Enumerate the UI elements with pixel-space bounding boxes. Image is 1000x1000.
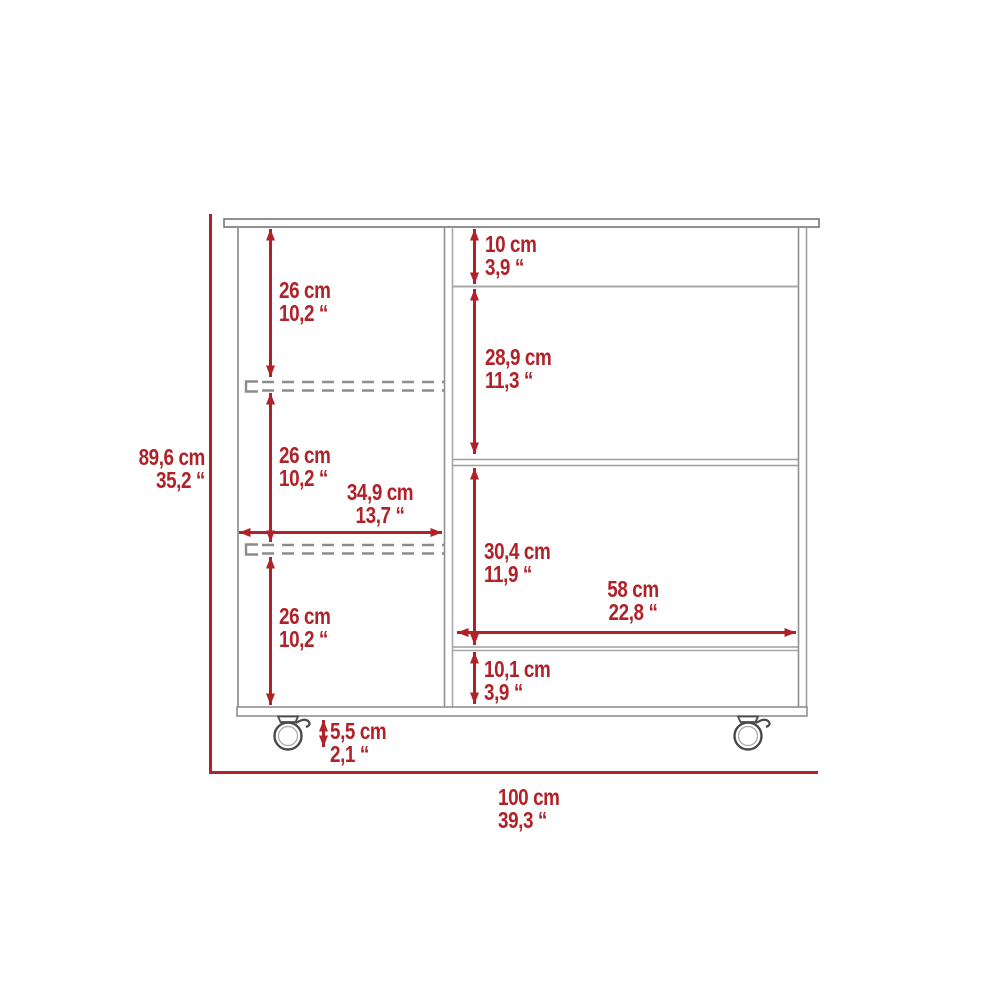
dim-label-right-lower: 30,4 cm 11,9 “: [484, 540, 550, 586]
dim-label-right-top: 10 cm 3,9 “: [485, 233, 536, 279]
dim-label-right-upper: 28,9 cm 11,3 “: [485, 346, 551, 392]
dashed-rail-upper: [246, 382, 444, 392]
bottom-panel: [237, 707, 807, 716]
caster-wheel-left: [275, 717, 310, 750]
dim-label-caster-height: 5,5 cm 2,1 “: [330, 720, 386, 766]
dim-label-left-top: 26 cm 10,2 “: [279, 279, 330, 325]
dim-label-left-bottom: 26 cm 10,2 “: [279, 605, 330, 651]
diagram-canvas: [0, 0, 1000, 1000]
dim-label-left-width: 34,9 cm 13,7 “: [298, 481, 462, 527]
dim-label-right-width: 58 cm 22,8 “: [551, 578, 715, 624]
caster-wheel-right: [735, 717, 770, 750]
dim-label-overall-width: 100 cm 39,3 “: [498, 786, 560, 832]
dim-label-right-bottom: 10,1 cm 3,9 “: [484, 658, 550, 704]
dashed-rail-lower: [246, 545, 444, 555]
dim-label-overall-height: 89,6 cm 35,2 “: [139, 446, 205, 492]
top-board: [224, 219, 819, 227]
dimension-diagram: 89,6 cm 35,2 “ 100 cm 39,3 “ 26 cm 10,2 …: [0, 0, 1000, 1000]
